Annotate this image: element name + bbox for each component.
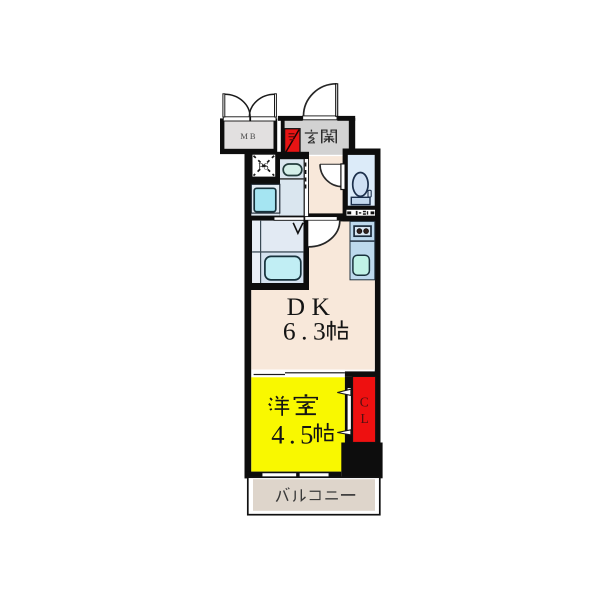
svg-text:6.3: 6.3 xyxy=(283,317,331,346)
svg-text:C: C xyxy=(360,394,369,409)
svg-text:L: L xyxy=(360,411,368,426)
svg-text:PS: PS xyxy=(258,162,269,172)
svg-text:MB: MB xyxy=(240,131,257,141)
svg-text:4.5: 4.5 xyxy=(271,420,318,450)
